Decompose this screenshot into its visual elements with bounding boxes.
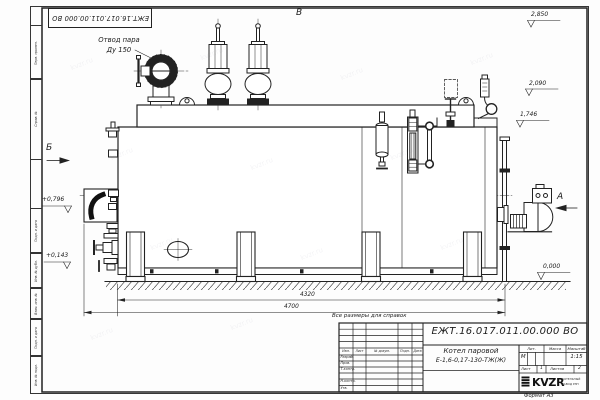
elevation-2090: 2,090 xyxy=(529,81,546,87)
header-massa: Масса xyxy=(544,347,566,351)
sheet-label: Лист xyxy=(521,367,531,371)
elevation-2850: 2,850 xyxy=(531,12,548,18)
elevation-0000: 0,000 xyxy=(543,264,560,270)
view-marker-v: В xyxy=(296,9,302,18)
sheets-value: 2 xyxy=(578,367,581,372)
ground-line xyxy=(105,282,570,291)
margin-cell-podp1: Подп. и дата xyxy=(30,208,42,254)
scale-value: 1:15 xyxy=(566,355,587,361)
company-sub2: ЗАВОД РЭП xyxy=(562,383,579,386)
col-podp: Подп. xyxy=(398,350,412,353)
margin-label: Инв. № дубл. xyxy=(34,260,38,282)
elevation-0143: +0,143 xyxy=(46,253,68,259)
margin-label: Подп. и дата xyxy=(34,220,38,242)
margin-cell-vzam: Взам. инв. № xyxy=(30,287,42,320)
product-name-line2: Е-1,6-0,17-130-ТЖ(Ж) xyxy=(423,358,519,364)
top-stamp-box: ЕЖТ.16.017.011.00.000 ВО xyxy=(48,8,152,28)
margin-cell-perv: Перв. примен. xyxy=(30,25,42,80)
steam-outlet-valve xyxy=(134,50,188,108)
margin-cell-invpodl: Инв. № подл. xyxy=(30,355,42,394)
product-name-line1: Котел паровой xyxy=(423,348,519,355)
lifting-lug-right xyxy=(459,98,474,105)
col-doc: № докум. xyxy=(366,350,398,353)
sheets-label: Листов xyxy=(550,367,564,371)
row-utv: Утв. xyxy=(341,387,348,390)
row-tkontr: Т.контр. xyxy=(341,368,356,371)
doc-number: ЕЖТ.16.017.011.00.000 ВО xyxy=(423,327,587,337)
elevation-1746: 1,746 xyxy=(520,112,537,118)
margin-cell-invdubl: Инв. № дубл. xyxy=(30,252,42,289)
dimension-4700: 4700 xyxy=(284,305,299,311)
margin-label: Инв. № подл. xyxy=(34,364,38,386)
safety-valve-1 xyxy=(205,19,231,110)
pressure-gauge xyxy=(479,75,497,119)
row-razrab: Разраб. xyxy=(341,356,354,359)
col-data: Дата xyxy=(412,350,423,353)
lifting-lug-left xyxy=(180,98,195,105)
format-label: Формат А3 xyxy=(524,394,554,399)
row-prov: Пров. xyxy=(341,362,351,365)
margin-label: Справ. № xyxy=(34,111,38,127)
lit-value: М xyxy=(519,355,528,361)
company-logo: KVZR xyxy=(532,376,564,389)
front-fittings xyxy=(94,224,118,272)
elevation-0796: +0,796 xyxy=(42,197,64,203)
safety-valve-2 xyxy=(245,19,271,110)
col-izm: Изм. xyxy=(339,350,353,353)
sheet-value: 1 xyxy=(540,367,543,372)
reference-note: Все размеры для справок xyxy=(332,314,407,320)
margin-cell-sprav: Справ. № xyxy=(30,78,42,160)
margin-label: Перв. примен. xyxy=(34,41,38,65)
margin-label: Подп. и дата xyxy=(34,327,38,349)
view-marker-b: Б xyxy=(46,144,52,153)
steam-drum xyxy=(137,105,497,127)
drawing-sheet: ЕЖТ.16.017.011.00.000 ВО Перв. примен. С… xyxy=(0,0,600,400)
view-marker-a: А xyxy=(557,193,563,202)
callout-line1: Отвод пара xyxy=(92,37,146,44)
company-sub1: КОТЕЛЬНЫЙ xyxy=(562,378,580,381)
margin-label: Взам. инв. № xyxy=(34,293,38,315)
burner xyxy=(84,189,119,222)
feed-pump xyxy=(498,185,553,232)
top-stamp-text: ЕЖТ.16.017.011.00.000 ВО xyxy=(52,14,149,22)
callout-line2: Ду 150 xyxy=(92,47,146,54)
dimension-4320: 4320 xyxy=(300,293,315,299)
header-scale: Масштаб xyxy=(566,347,587,351)
header-lit: Лит. xyxy=(519,347,544,351)
margin-cell-podp2: Подп. и дата xyxy=(30,318,42,357)
row-nkontr: Н.контр. xyxy=(341,380,356,383)
col-list: Лист xyxy=(353,350,366,353)
